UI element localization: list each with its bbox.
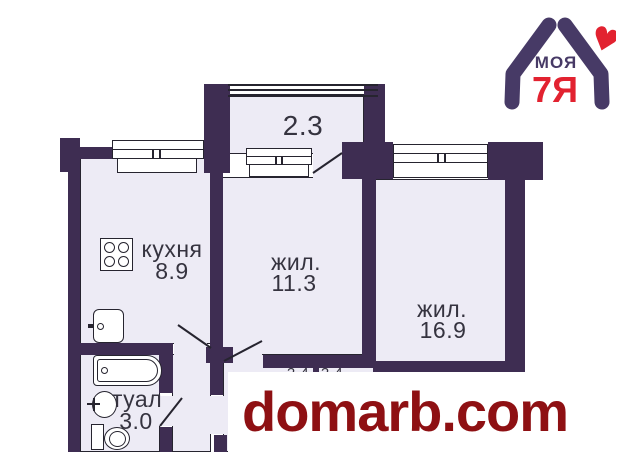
floorplan-image: 2.3 кухня 8.9 жил. 11.3 жил. 16.9 туал 3…	[0, 0, 630, 452]
living-small-area-label: 11.3	[264, 272, 324, 295]
wall-living-small-top-right	[342, 142, 393, 179]
wall-living-divider	[362, 179, 376, 361]
hallway-doorway	[209, 396, 225, 434]
balcony-area-label: 2.3	[273, 112, 333, 140]
wall-topright-corner	[488, 142, 543, 180]
washbasin-faucet	[93, 398, 95, 411]
wall-balcony-right	[364, 84, 385, 144]
stove-icon	[100, 238, 133, 271]
kitchen-window-sill	[117, 158, 197, 173]
toilet-icon	[91, 424, 104, 450]
kitchen-doorway	[174, 341, 207, 357]
living-large-window-sill	[393, 162, 488, 178]
watermark-box: domarb.com	[228, 372, 630, 452]
wall-divider-stub	[206, 347, 233, 363]
brand-logo: ♥ МОЯ 7Я	[498, 12, 616, 116]
watermark-text: domarb.com	[242, 378, 568, 446]
living-large-area-label: 16.9	[413, 319, 473, 342]
hallway-floor	[172, 354, 211, 452]
logo-text-bottom: 7Я	[532, 69, 578, 110]
toilet-area-label: 3.0	[106, 410, 166, 433]
wall-topleft-corner	[60, 138, 80, 172]
wall-living-large-right	[505, 180, 525, 373]
balcony-doorway	[313, 151, 342, 180]
wall-outer-left	[68, 172, 80, 452]
kitchen-area-label: 8.9	[142, 260, 202, 283]
balcony-railing-line	[228, 95, 378, 97]
balcony-railing-line	[228, 89, 378, 91]
wall-balcony-left	[204, 84, 230, 173]
sink-icon	[93, 309, 124, 343]
wall-divider-lower	[214, 435, 227, 452]
balcony-railing-line	[228, 84, 378, 86]
balcony-window-sill	[249, 164, 309, 177]
bathtub-icon	[93, 355, 162, 386]
